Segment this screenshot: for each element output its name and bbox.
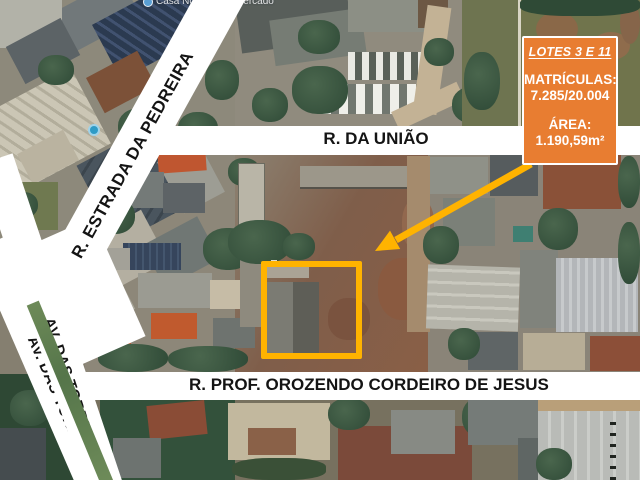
gable-roof	[426, 264, 520, 331]
matriculas-label: MATRÍCULAS:	[524, 72, 616, 88]
street-label-uniao: R. DA UNIÃO	[276, 129, 476, 149]
tree	[423, 226, 459, 264]
tree-row	[232, 458, 326, 480]
street-label-orozendo: R. PROF. OROZENDO CORDEIRO DE JESUS	[189, 375, 545, 395]
tree	[618, 156, 640, 208]
area-label: ÁREA:	[524, 117, 616, 133]
tree	[252, 88, 288, 122]
building-roof	[520, 250, 558, 328]
fence-line	[518, 0, 521, 126]
lot-highlight-rectangle	[261, 261, 362, 359]
matriculas-value: 7.285/20.004	[524, 88, 616, 105]
building-roof	[348, 0, 426, 32]
shed-roof	[300, 166, 422, 189]
tree	[464, 52, 500, 110]
tree	[328, 398, 370, 430]
tree	[292, 66, 348, 114]
building-roof	[0, 428, 46, 480]
tree	[38, 55, 74, 85]
building-roof	[248, 428, 296, 455]
building-roof	[138, 273, 212, 308]
tree	[205, 60, 239, 100]
tree	[538, 208, 578, 250]
building-roof	[163, 183, 205, 213]
tree	[448, 328, 480, 360]
building-roof	[430, 157, 488, 194]
truck-row	[348, 52, 422, 80]
area-value: 1.190,59m²	[524, 133, 616, 150]
map-marker-icon	[88, 124, 100, 136]
roof-vent-dots	[610, 420, 616, 480]
building-roof	[146, 400, 207, 440]
satellite-map-annotation: Casa Nova Supermercado R. ESTRADA DA PED…	[0, 0, 640, 480]
pool	[513, 226, 533, 242]
info-box-title: LOTES 3 E 11	[524, 45, 616, 59]
tree	[536, 448, 572, 480]
building-roof	[151, 313, 197, 339]
tree	[424, 38, 454, 66]
lot-info-box: LOTES 3 E 11 MATRÍCULAS: 7.285/20.004 ÁR…	[522, 36, 618, 165]
tree-row	[520, 0, 640, 16]
building-roof	[590, 336, 640, 371]
building-roof	[113, 438, 161, 478]
tree	[168, 346, 248, 372]
place-dot-icon	[143, 0, 153, 7]
tree	[298, 20, 340, 54]
building-roof	[523, 333, 585, 370]
tree	[283, 233, 315, 260]
building-roof	[391, 410, 455, 454]
tree	[618, 222, 640, 284]
solar-panel-roof	[123, 243, 181, 270]
